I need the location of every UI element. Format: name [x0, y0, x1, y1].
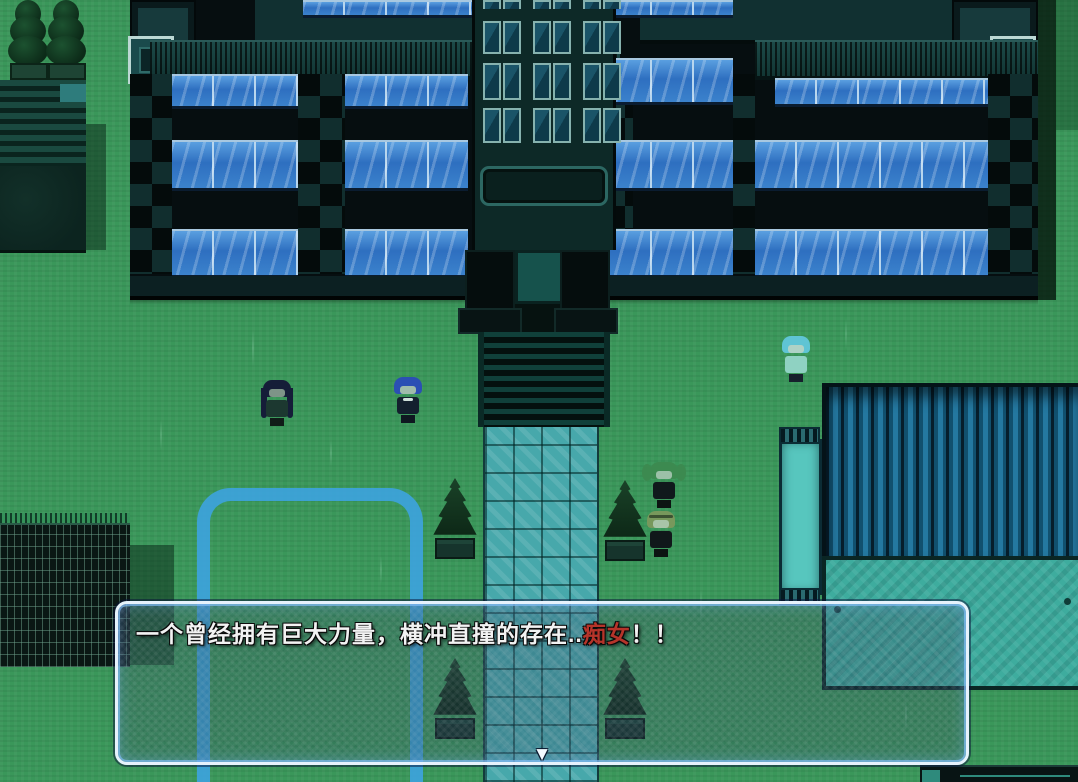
window-strip — [755, 140, 988, 191]
hairband — [649, 515, 673, 518]
tree-planter — [435, 538, 475, 559]
tower-window — [583, 108, 621, 139]
tree-planter — [605, 540, 645, 561]
npc-cyan-bob-girl[interactable] — [777, 336, 815, 384]
face — [653, 520, 669, 528]
facade-pier — [298, 74, 345, 274]
rain-streak — [330, 440, 332, 466]
dialogue-box[interactable]: 一个曾经拥有巨大力量，横冲直撞的存在..痴女！！ ▼ — [115, 601, 969, 765]
tower-window-row — [475, 0, 629, 9]
pillar-base — [458, 308, 522, 334]
outfit — [653, 482, 675, 499]
game-screen: 一个曾经拥有巨大力量，横冲直撞的存在..痴女！！ ▼ — [0, 0, 1078, 782]
window-strip — [610, 140, 733, 191]
grass-shade — [1056, 0, 1078, 130]
tower-window — [533, 63, 571, 96]
outfit — [650, 531, 672, 548]
tower-window — [583, 63, 621, 96]
structure-cell — [922, 770, 940, 782]
tower-window — [583, 21, 621, 50]
entrance-steps — [478, 332, 610, 427]
dark-platform — [0, 166, 86, 253]
rain-streak — [618, 300, 620, 342]
tower-window — [483, 21, 521, 50]
tree-pot — [10, 63, 48, 80]
tower-window-row — [475, 108, 629, 139]
rain-streak — [252, 330, 254, 366]
conifer-tree — [46, 0, 86, 80]
npc-blue-haired-character[interactable] — [389, 377, 427, 425]
shirt-collar — [403, 398, 413, 401]
rain-streak — [845, 318, 847, 350]
entrance-tower — [472, 0, 616, 250]
conifer-tree — [8, 0, 48, 80]
face — [656, 471, 672, 479]
hedge-fringe — [0, 513, 130, 523]
window-strip — [345, 140, 468, 191]
face — [788, 345, 804, 353]
legs — [654, 549, 668, 557]
tower-window — [533, 21, 571, 50]
window-strip — [172, 140, 298, 191]
tower-window — [483, 63, 521, 96]
vertical-panel — [779, 439, 822, 595]
bottom-right-structure — [920, 765, 1078, 782]
facade-pier — [988, 74, 1038, 274]
dialogue-text: 一个曾经拥有巨大力量，横冲直撞的存在..痴女！！ — [118, 604, 966, 649]
window-strip — [775, 78, 988, 107]
outfit — [785, 356, 807, 373]
grid-canopy — [0, 523, 130, 667]
face — [400, 386, 416, 394]
tower-window — [483, 0, 521, 9]
legs — [270, 418, 284, 426]
window-strip — [172, 229, 298, 278]
pine-tree — [432, 478, 478, 559]
tower-window — [533, 0, 571, 9]
legs — [401, 415, 415, 423]
window-strip — [755, 229, 988, 278]
legs — [657, 500, 671, 508]
dialogue-segment-emphasis: 痴女 — [583, 621, 631, 647]
face — [269, 389, 285, 397]
tower-window — [483, 108, 521, 139]
window-strip — [303, 0, 473, 18]
npc-olive-haired-girl[interactable] — [642, 511, 680, 559]
entrance-sign — [480, 166, 608, 206]
building-side-shadow — [1038, 0, 1056, 300]
tower-window — [533, 108, 571, 139]
pillar-base — [554, 308, 618, 334]
legs — [789, 374, 803, 382]
tower-window-row — [475, 63, 629, 96]
dialogue-segment: ！！ — [631, 621, 679, 647]
continue-arrow-icon[interactable]: ▼ — [533, 745, 552, 764]
platform-shadow — [86, 124, 106, 250]
tower-window-row — [475, 21, 629, 50]
tree-pot — [48, 63, 86, 80]
screw-dot — [1064, 598, 1071, 605]
window-strip — [172, 74, 298, 109]
facade-pier — [130, 74, 172, 274]
tower-window — [583, 0, 621, 9]
panel-cap — [779, 427, 820, 444]
outfit — [266, 400, 288, 417]
rain-streak — [160, 420, 162, 450]
npc-long-dark-haired-girl[interactable] — [258, 380, 296, 428]
npc-green-twintail-girl[interactable] — [645, 462, 683, 510]
window-strip — [345, 229, 468, 278]
facade-pier — [733, 74, 755, 274]
window-strip — [610, 229, 733, 278]
corrugated-roof — [822, 383, 1078, 564]
window-strip — [345, 74, 468, 109]
dialogue-segment: 一个曾经拥有巨大力量，横冲直撞的存在.. — [136, 621, 583, 647]
bleacher-landing — [60, 84, 86, 102]
structure-line — [960, 775, 1070, 777]
